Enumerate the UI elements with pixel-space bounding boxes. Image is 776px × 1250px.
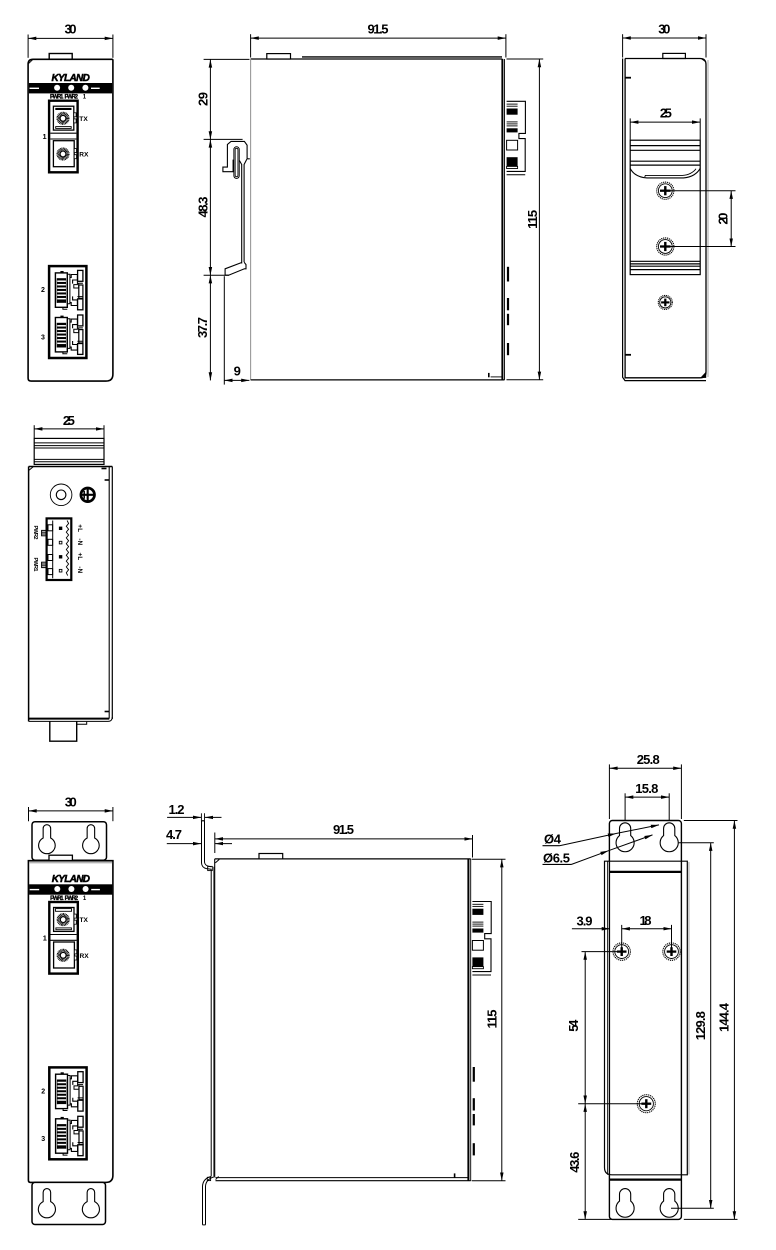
svg-text:4.7: 4.7	[166, 827, 182, 842]
svg-text:30: 30	[658, 22, 670, 37]
svg-text:29: 29	[196, 92, 211, 106]
svg-text:30: 30	[65, 794, 77, 809]
svg-text:30: 30	[65, 22, 77, 37]
svg-text:TX: TX	[79, 116, 88, 123]
svg-text:RX: RX	[79, 152, 89, 159]
svg-text:91.5: 91.5	[333, 822, 354, 837]
svg-text:115: 115	[485, 1010, 500, 1029]
svg-text:3: 3	[41, 335, 45, 342]
svg-text:PWR2: PWR2	[32, 526, 38, 540]
svg-text:43.6: 43.6	[567, 1152, 582, 1173]
svg-text:25: 25	[660, 106, 672, 121]
svg-text:91.5: 91.5	[368, 22, 389, 37]
svg-text:25: 25	[63, 413, 75, 428]
svg-text:2: 2	[41, 287, 45, 294]
svg-text:3.9: 3.9	[577, 913, 593, 928]
svg-text:54: 54	[566, 1019, 581, 1032]
svg-text:+L: +L	[76, 553, 83, 561]
svg-text:129.8: 129.8	[693, 1011, 708, 1040]
svg-text:25.8: 25.8	[637, 752, 660, 767]
svg-text:48.3: 48.3	[196, 197, 211, 218]
svg-text:+L: +L	[76, 524, 83, 532]
svg-text:37.7: 37.7	[195, 317, 210, 338]
svg-text:-N: -N	[76, 566, 83, 573]
svg-text:115: 115	[525, 210, 540, 229]
svg-text:18: 18	[640, 913, 652, 928]
svg-text:20: 20	[716, 213, 731, 225]
svg-text:9: 9	[234, 364, 241, 379]
svg-text:1: 1	[43, 132, 47, 141]
svg-text:144.4: 144.4	[717, 1002, 732, 1032]
svg-text:PWR1: PWR1	[32, 558, 38, 572]
svg-text:-N: -N	[76, 538, 83, 545]
svg-text:KYLAND: KYLAND	[52, 73, 90, 84]
svg-text:Ø6.5: Ø6.5	[543, 851, 570, 866]
svg-text:Ø4: Ø4	[544, 832, 562, 847]
svg-text:15.8: 15.8	[635, 781, 658, 796]
svg-text:1.2: 1.2	[169, 802, 185, 817]
